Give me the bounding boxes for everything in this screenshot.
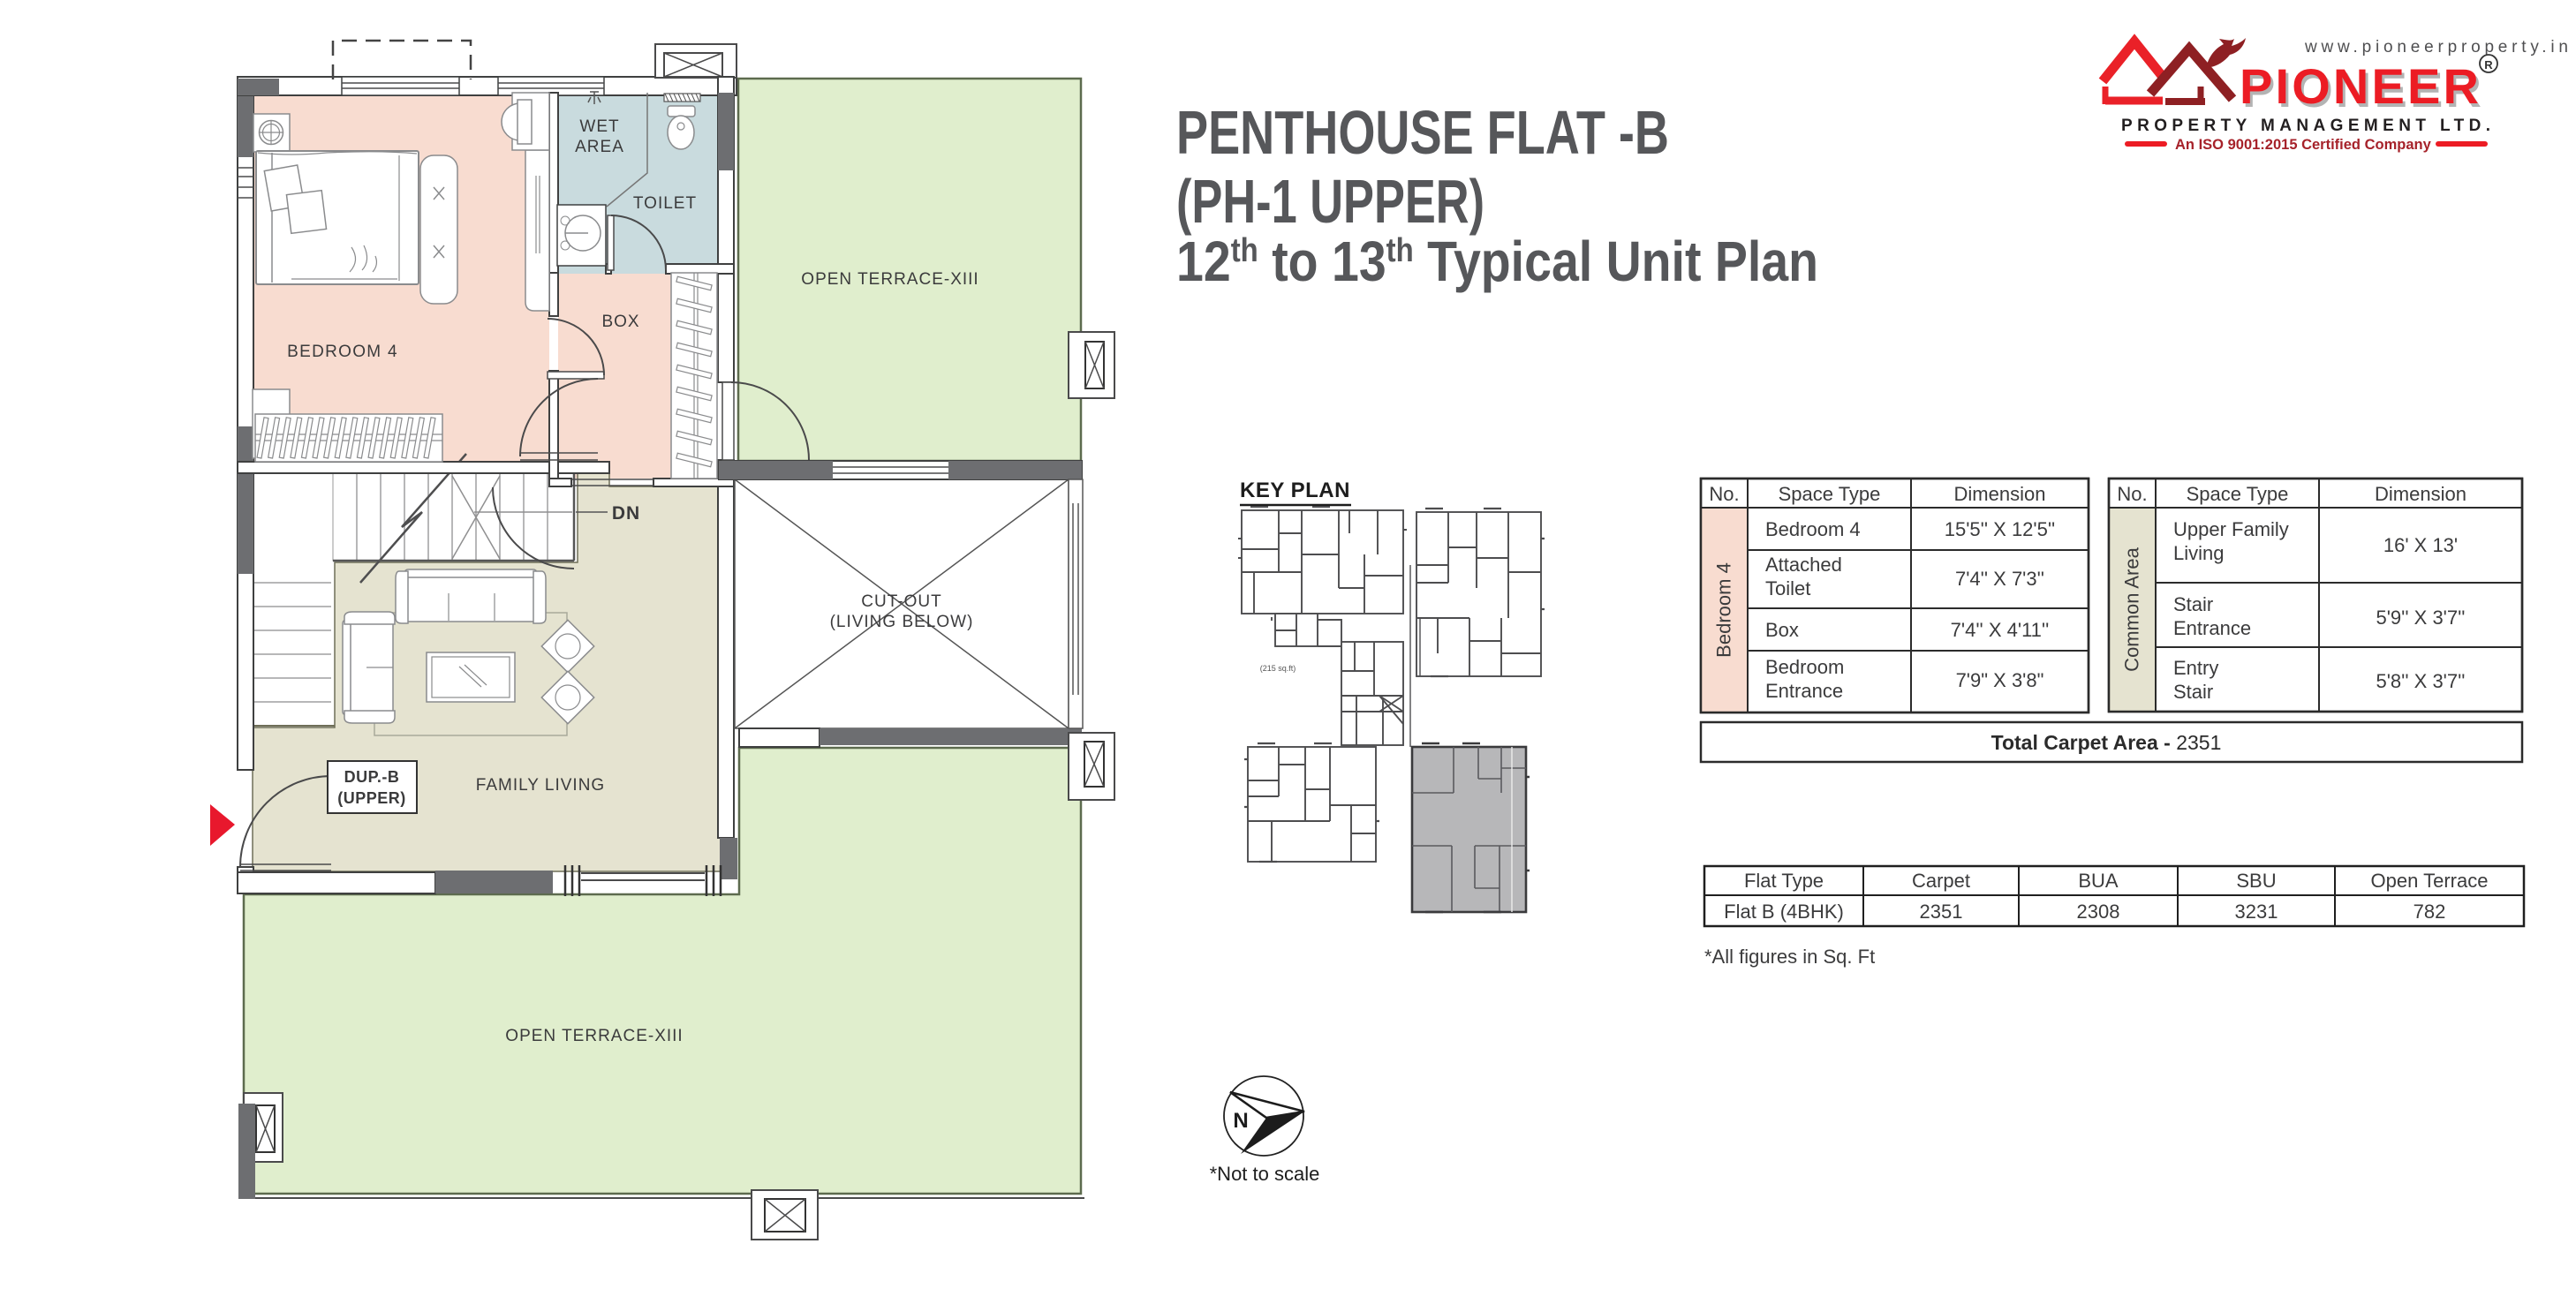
svg-text:7'9" X 3'8": 7'9" X 3'8" xyxy=(1956,669,2044,691)
svg-text:DUP.-B: DUP.-B xyxy=(344,768,400,786)
svg-text:PROPERTY MANAGEMENT LTD.: PROPERTY MANAGEMENT LTD. xyxy=(2121,117,2495,135)
svg-text:Bedroom 4: Bedroom 4 xyxy=(1765,518,1861,540)
svg-text:No.: No. xyxy=(1709,483,1739,505)
svg-text:Flat Type: Flat Type xyxy=(1744,870,1824,892)
svg-text:Entrance: Entrance xyxy=(1765,680,1843,702)
svg-text:R: R xyxy=(2484,58,2493,72)
svg-text:BEDROOM 4: BEDROOM 4 xyxy=(287,343,398,361)
svg-text:Common Area: Common Area xyxy=(2121,547,2143,671)
svg-text:2308: 2308 xyxy=(2077,901,2120,923)
svg-text:12th to 13th Typical Unit Plan: 12th to 13th Typical Unit Plan xyxy=(1176,230,1818,293)
svg-text:*All figures in Sq. Ft: *All figures in Sq. Ft xyxy=(1704,946,1875,968)
svg-text:AREA: AREA xyxy=(575,138,624,156)
svg-text:Space Type: Space Type xyxy=(2187,483,2289,505)
svg-text:Bedroom 4: Bedroom 4 xyxy=(1713,562,1735,658)
svg-text:(PH-1 UPPER): (PH-1 UPPER) xyxy=(1176,168,1484,237)
svg-text:Total Carpet Area - 2351: Total Carpet Area - 2351 xyxy=(1991,731,2222,754)
svg-text:Entrance: Entrance xyxy=(2173,617,2251,639)
svg-text:782: 782 xyxy=(2414,901,2446,923)
svg-text:SBU: SBU xyxy=(2236,870,2276,892)
svg-text:Attached: Attached xyxy=(1765,554,1842,576)
svg-text:7'4'' X 4'11'': 7'4'' X 4'11'' xyxy=(1951,619,2050,641)
svg-text:KEY PLAN: KEY PLAN xyxy=(1240,479,1350,502)
svg-text:DN: DN xyxy=(612,503,640,524)
svg-text:(LIVING BELOW): (LIVING BELOW) xyxy=(830,613,974,631)
svg-text:Living: Living xyxy=(2173,542,2224,564)
svg-text:WET: WET xyxy=(579,117,619,136)
svg-text:BOX: BOX xyxy=(601,313,639,331)
svg-text:Carpet: Carpet xyxy=(1912,870,1970,892)
svg-text:*Not to scale: *Not to scale xyxy=(1210,1163,1320,1185)
svg-text:Upper Family: Upper Family xyxy=(2173,518,2289,540)
svg-text:PIONEER: PIONEER xyxy=(2240,58,2479,114)
svg-text:(215 sq.ft): (215 sq.ft) xyxy=(1260,664,1296,673)
svg-text:3231: 3231 xyxy=(2235,901,2278,923)
svg-text:N: N xyxy=(1233,1109,1248,1133)
svg-text:16' X 13': 16' X 13' xyxy=(2383,534,2458,556)
svg-text:Open Terrace: Open Terrace xyxy=(2371,870,2489,892)
svg-text:CUT-OUT: CUT-OUT xyxy=(861,592,941,611)
svg-text:Dimension: Dimension xyxy=(1954,483,2046,505)
svg-text:Toilet: Toilet xyxy=(1765,577,1810,599)
svg-text:An ISO 9001:2015 Certified Com: An ISO 9001:2015 Certified Company xyxy=(2175,137,2432,153)
svg-text:Stair: Stair xyxy=(2173,681,2213,703)
svg-text:www.pioneerproperty.in: www.pioneerproperty.in xyxy=(2304,38,2572,57)
svg-text:5'8'' X 3'7'': 5'8'' X 3'7'' xyxy=(2376,670,2465,692)
svg-text:No.: No. xyxy=(2117,483,2147,505)
svg-text:2351: 2351 xyxy=(1920,901,1963,923)
svg-text:Dimension: Dimension xyxy=(2375,483,2466,505)
svg-text:PENTHOUSE FLAT -B: PENTHOUSE FLAT -B xyxy=(1176,98,1669,167)
svg-text:Bedroom: Bedroom xyxy=(1765,656,1844,678)
svg-text:(UPPER): (UPPER) xyxy=(337,789,406,807)
svg-text:5'9'' X 3'7'': 5'9'' X 3'7'' xyxy=(2376,607,2465,629)
svg-text:FAMILY LIVING: FAMILY LIVING xyxy=(476,776,605,795)
svg-text:Space Type: Space Type xyxy=(1779,483,1881,505)
svg-text:TOILET: TOILET xyxy=(633,194,697,213)
svg-text:OPEN TERRACE-XIII: OPEN TERRACE-XIII xyxy=(801,270,978,289)
svg-text:Flat B (4BHK): Flat B (4BHK) xyxy=(1724,901,1844,923)
svg-text:7'4'' X 7'3'': 7'4'' X 7'3'' xyxy=(1955,568,2044,590)
svg-text:Entry: Entry xyxy=(2173,657,2218,679)
svg-text:BUA: BUA xyxy=(2078,870,2119,892)
svg-text:Box: Box xyxy=(1765,619,1799,641)
svg-text:15'5'' X 12'5'': 15'5'' X 12'5'' xyxy=(1945,518,2056,540)
svg-text:OPEN TERRACE-XIII: OPEN TERRACE-XIII xyxy=(505,1027,683,1045)
svg-text:Stair: Stair xyxy=(2173,593,2213,615)
